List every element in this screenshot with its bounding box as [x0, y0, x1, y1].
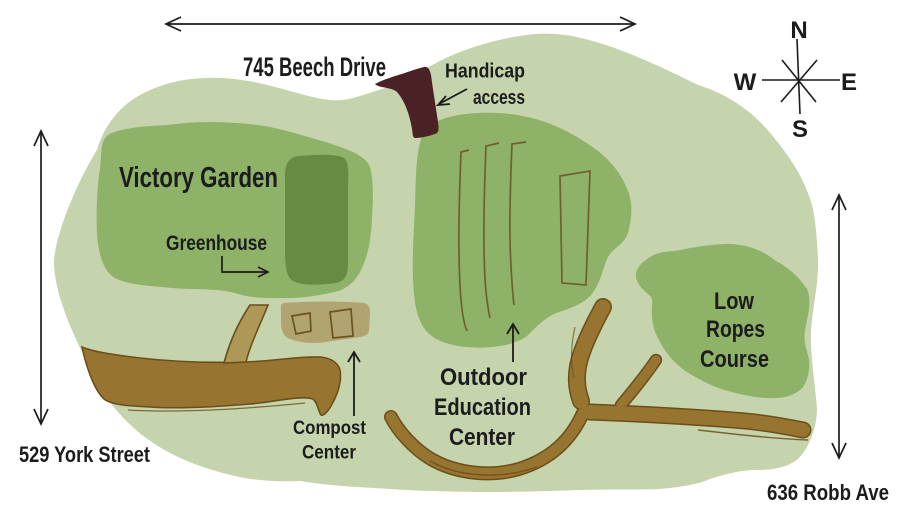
svg-text:636 Robb Ave: 636 Robb Ave	[767, 480, 889, 505]
svg-text:Low: Low	[714, 288, 754, 315]
svg-text:Course: Course	[700, 346, 769, 373]
svg-text:745 Beech Drive: 745 Beech Drive	[243, 52, 386, 82]
svg-text:Victory Garden: Victory Garden	[119, 162, 278, 194]
svg-text:Center: Center	[302, 443, 357, 464]
svg-text:N: N	[790, 17, 807, 44]
svg-text:E: E	[841, 69, 857, 96]
svg-text:Ropes: Ropes	[706, 316, 765, 343]
svg-text:Center: Center	[449, 424, 515, 451]
svg-text:Outdoor: Outdoor	[440, 364, 527, 391]
svg-text:Compost: Compost	[293, 418, 367, 439]
svg-text:529 York Street: 529 York Street	[19, 442, 151, 467]
svg-text:Greenhouse: Greenhouse	[166, 232, 267, 255]
svg-text:Handicap: Handicap	[445, 61, 525, 83]
svg-text:access: access	[473, 87, 525, 109]
svg-text:Education: Education	[434, 394, 531, 421]
svg-text:S: S	[792, 116, 808, 143]
svg-text:W: W	[734, 69, 757, 96]
